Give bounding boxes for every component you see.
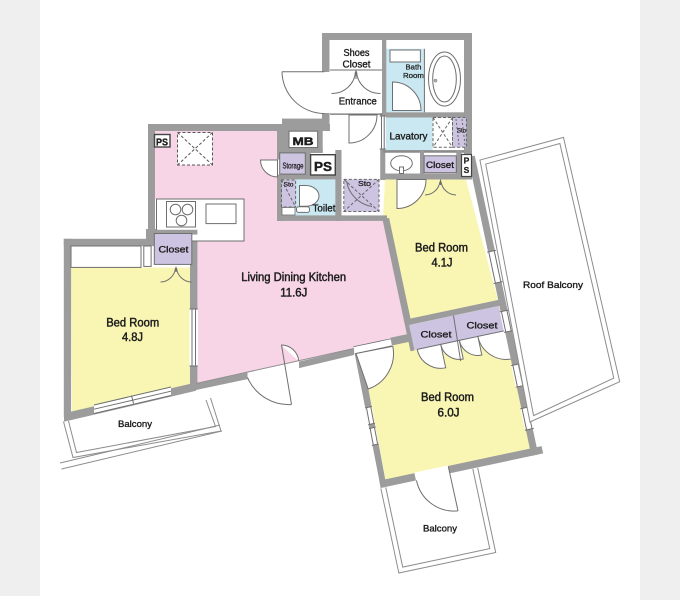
svg-text:PS: PS (156, 137, 168, 149)
svg-text:Closet: Closet (421, 330, 452, 341)
svg-text:11.6J: 11.6J (280, 288, 307, 300)
svg-text:Storage: Storage (283, 162, 304, 171)
svg-text:Room: Room (403, 71, 424, 80)
svg-text:Balcony: Balcony (423, 524, 457, 535)
svg-text:P: P (464, 156, 470, 166)
svg-text:S: S (464, 165, 470, 175)
svg-text:Lavatory: Lavatory (390, 132, 428, 143)
svg-text:Entrance: Entrance (339, 96, 377, 108)
svg-text:Living Dining Kitchen: Living Dining Kitchen (241, 272, 346, 284)
svg-text:Bed Room: Bed Room (106, 318, 159, 330)
svg-text:Roof Balcony: Roof Balcony (523, 280, 583, 291)
svg-text:Closet: Closet (343, 60, 371, 71)
svg-text:PS: PS (314, 159, 332, 174)
svg-text:Bed Room: Bed Room (415, 243, 468, 255)
svg-text:Toilet: Toilet (313, 204, 336, 215)
svg-text:Closet: Closet (426, 160, 454, 171)
svg-text:Closet: Closet (467, 321, 498, 332)
svg-text:6.0J: 6.0J (438, 408, 460, 420)
svg-text:Closet: Closet (159, 245, 189, 256)
svg-text:Sto: Sto (457, 128, 466, 135)
svg-text:Sto: Sto (284, 183, 295, 189)
svg-text:4.8J: 4.8J (122, 332, 143, 344)
svg-text:MB: MB (293, 136, 314, 148)
svg-text:Shoes: Shoes (344, 48, 370, 59)
svg-text:4.1J: 4.1J (432, 258, 453, 270)
svg-text:Sto: Sto (358, 181, 371, 188)
svg-text:Bed Room: Bed Room (421, 392, 474, 404)
svg-text:Balcony: Balcony (118, 419, 152, 430)
